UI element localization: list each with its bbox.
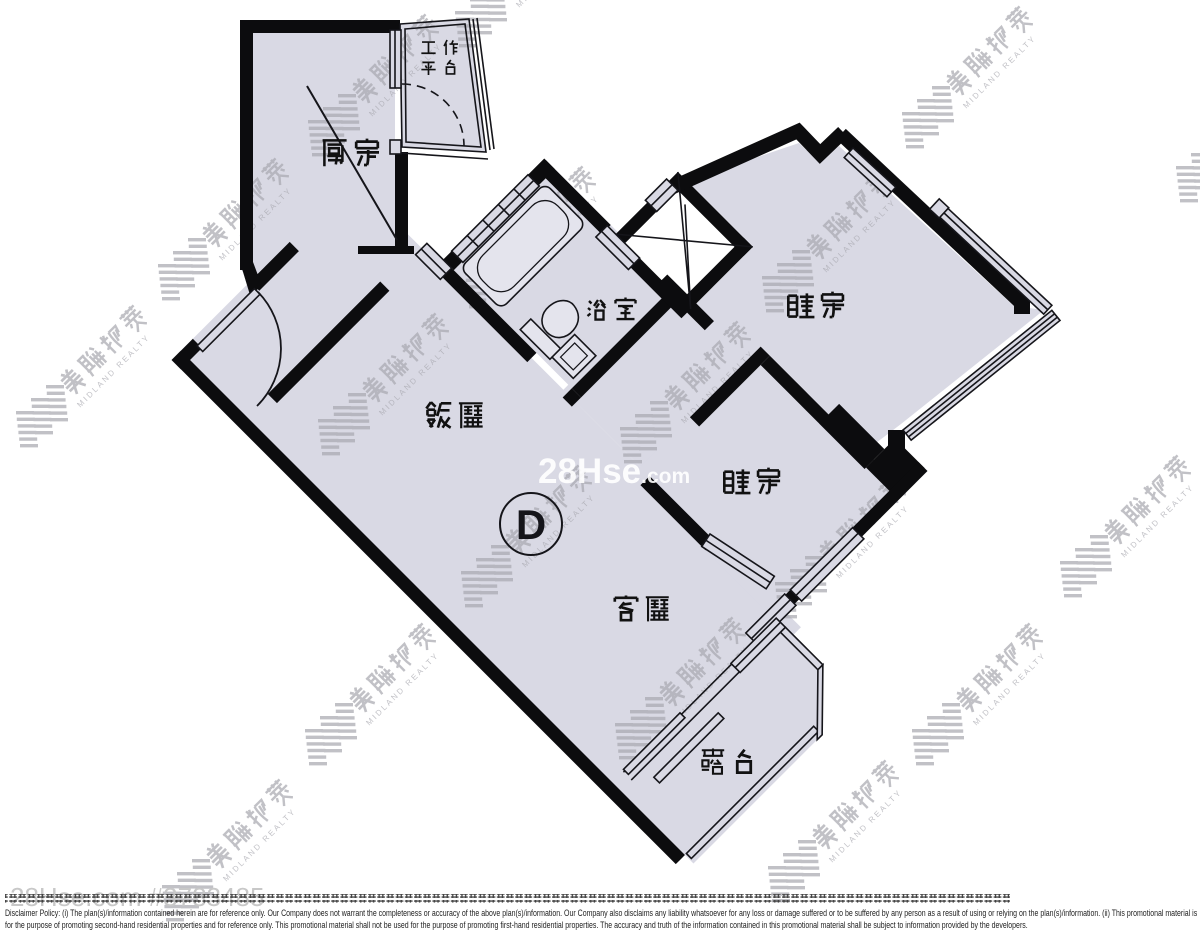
svg-text:D: D [516, 501, 546, 548]
